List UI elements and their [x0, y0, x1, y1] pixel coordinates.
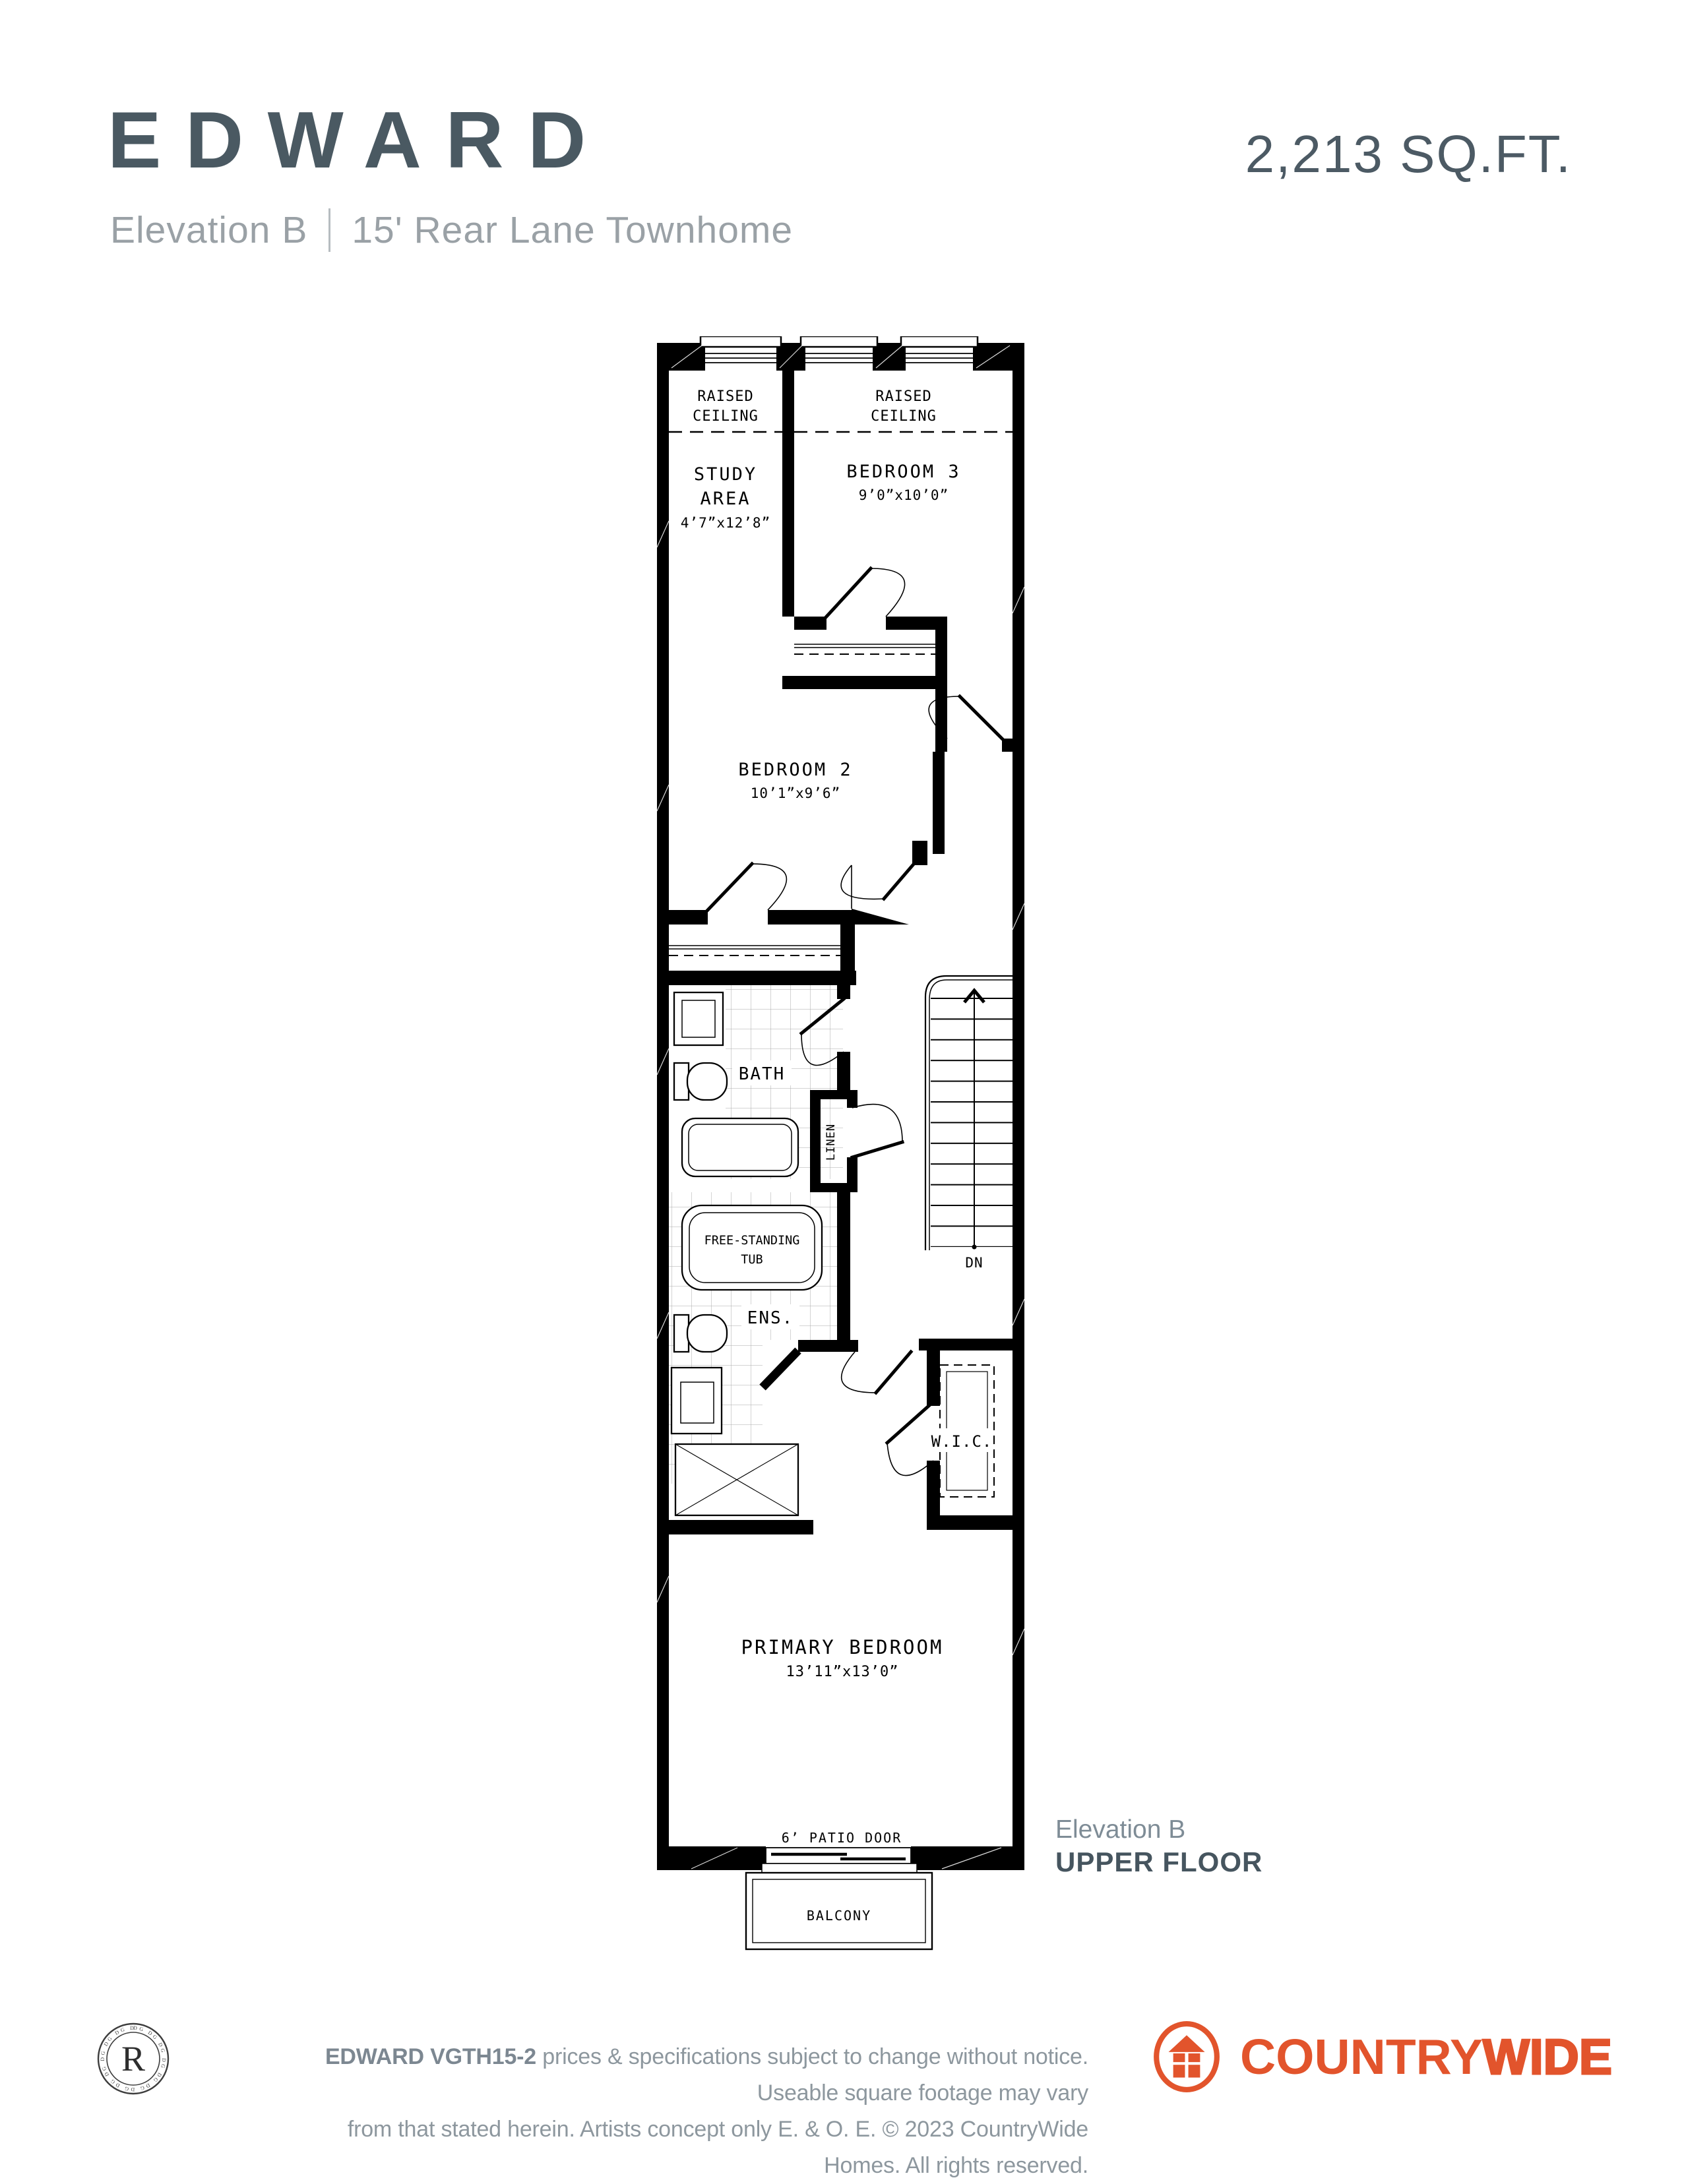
room-bedroom-2: BEDROOM 2 10’1”x9’6” — [738, 760, 852, 801]
raised-ceiling-left: RAISED CEILING — [669, 388, 782, 432]
corridor-door-icon — [841, 862, 916, 909]
stairs: DN — [925, 976, 1013, 1271]
countrywide-wordmark: COUNTRYWIDE — [1240, 2028, 1612, 2085]
bath-tub-icon — [682, 1118, 798, 1176]
fixture-label: FREE-STANDING — [704, 1234, 800, 1248]
top-windows — [671, 336, 1010, 371]
caption-floor: UPPER FLOOR — [1055, 1846, 1263, 1879]
model-code: EDWARD VGTH15-2 — [325, 2044, 536, 2069]
shower-icon — [675, 1444, 798, 1515]
subtitle-elevation: Elevation B — [110, 208, 307, 252]
subtitle-product: 15' Rear Lane Townhome — [352, 208, 793, 252]
room-study-area: STUDY AREA 4’7”x12’8” — [681, 464, 770, 531]
raised-ceiling-label: RAISED — [697, 388, 753, 405]
room-label: BATH — [739, 1064, 786, 1084]
room-label: BEDROOM 2 — [738, 760, 852, 780]
room-primary-bedroom: PRIMARY BEDROOM 13’11”x13’0” — [741, 1636, 944, 1680]
brochure-page: EDWARD 2,213 SQ.FT. Elevation B 15' Rear… — [0, 0, 1684, 2178]
subtitle: Elevation B 15' Rear Lane Townhome — [110, 208, 793, 252]
floor-plan-drawing: RAISED CEILING RAISED CEILING STUDY AREA… — [652, 336, 1034, 1958]
walk-in-closet: W.I.C. — [931, 1365, 994, 1497]
suite-door-icon — [842, 1352, 911, 1393]
caption-elevation: Elevation B — [1055, 1815, 1263, 1846]
brand-wide: WIDE — [1483, 2029, 1612, 2084]
patio-door: 6’ PATIO DOOR — [762, 1830, 917, 1873]
bedroom3-closet — [794, 644, 935, 654]
registered-seal-icon: DG DG DG DG DG DG DG DG DG DG DG DG DG R — [96, 2022, 170, 2096]
stair-treads-icon — [931, 998, 1013, 1247]
balcony: BALCONY — [746, 1873, 932, 1949]
room-label: PRIMARY BEDROOM — [741, 1636, 944, 1658]
legal-disclaimer: EDWARD VGTH15-2 prices & specifications … — [310, 2039, 1088, 2184]
window-icon — [801, 336, 877, 371]
page-title: EDWARD — [108, 94, 610, 186]
room-dims: 4’7”x12’8” — [681, 515, 770, 531]
room-label: LINEN — [825, 1124, 838, 1161]
subtitle-divider — [328, 208, 330, 252]
fixture-label: TUB — [741, 1253, 763, 1267]
raised-ceiling-label: RAISED — [875, 388, 931, 405]
disclaimer-line-2: from that stated herein. Artists concept… — [348, 2117, 1088, 2178]
room-label: BEDROOM 3 — [846, 462, 960, 482]
raised-ceiling-label: CEILING — [871, 408, 937, 425]
room-dims: 13’11”x13’0” — [786, 1664, 899, 1680]
raised-ceiling-label: CEILING — [693, 408, 759, 425]
countrywide-logo: COUNTRYWIDE — [1153, 2020, 1612, 2093]
bedroom2-door-icon — [708, 864, 786, 910]
bedroom3-door-icon — [826, 568, 905, 617]
floor-plan: RAISED CEILING RAISED CEILING STUDY AREA… — [652, 336, 1034, 1958]
seal-letter: R — [121, 2039, 145, 2078]
room-dims: 9’0”x10’0” — [859, 487, 949, 503]
room-label: STUDY — [694, 464, 757, 485]
plan-caption: Elevation B UPPER FLOOR — [1055, 1815, 1263, 1879]
bath-toilet-icon — [674, 1063, 727, 1100]
room-dims: 10’1”x9’6” — [751, 785, 840, 801]
brand-country: COUNTRY — [1240, 2029, 1483, 2084]
bedroom2-closet — [669, 946, 840, 956]
ensuite-toilet-icon — [674, 1315, 727, 1352]
patio-door-label: 6’ PATIO DOOR — [782, 1830, 902, 1846]
linen-door-icon — [852, 1105, 902, 1157]
stair-dn-label: DN — [965, 1255, 983, 1271]
wic-door-icon — [887, 1406, 933, 1476]
freestanding-tub-icon: FREE-STANDING TUB — [682, 1205, 822, 1290]
window-icon — [901, 336, 978, 371]
room-label: AREA — [700, 489, 751, 509]
ensuite-vanity-icon — [671, 1368, 722, 1434]
square-footage: 2,213 SQ.FT. — [1245, 124, 1572, 185]
raised-ceiling-right: RAISED CEILING — [794, 388, 1013, 432]
countrywide-house-icon — [1153, 2020, 1220, 2093]
room-label: ENS. — [747, 1308, 794, 1328]
balcony-label: BALCONY — [807, 1908, 871, 1924]
disclaimer-line-1: prices & specifications subject to chang… — [542, 2044, 1088, 2106]
window-icon — [701, 336, 781, 371]
room-label: W.I.C. — [931, 1432, 993, 1451]
room-bedroom-3: BEDROOM 3 9’0”x10’0” — [846, 462, 960, 503]
